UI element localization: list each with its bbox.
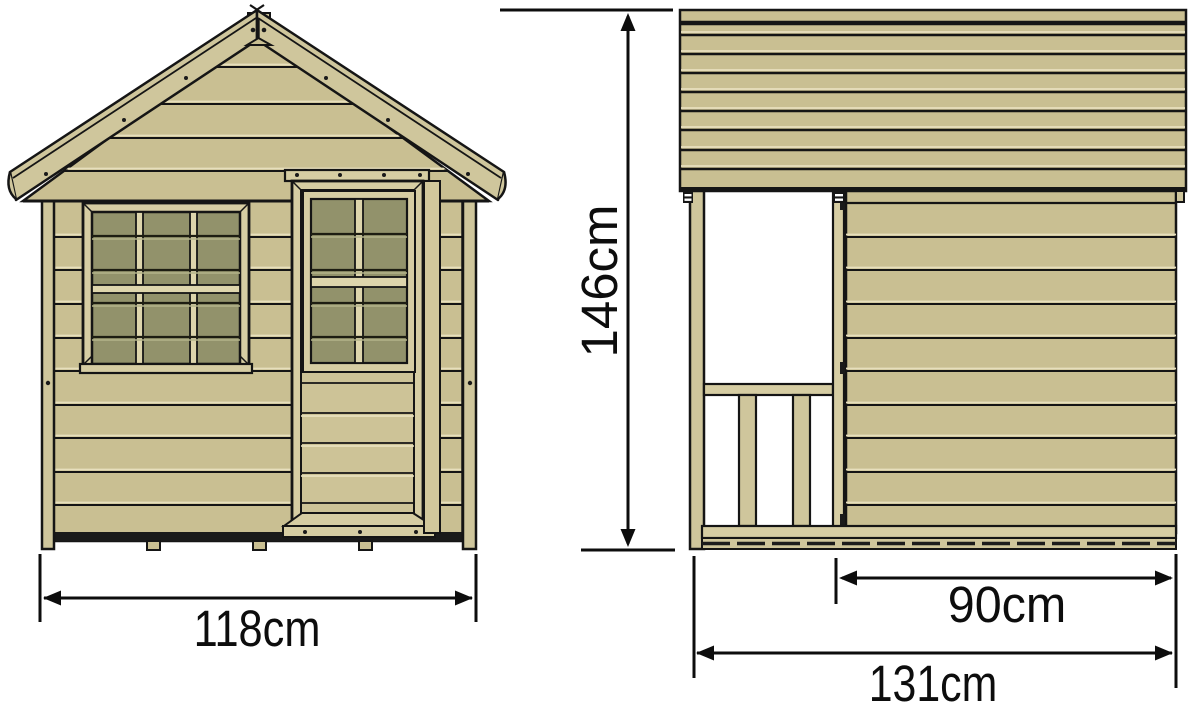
svg-text:118cm: 118cm: [194, 601, 321, 658]
svg-text:146cm: 146cm: [571, 204, 628, 357]
svg-text:131cm: 131cm: [869, 654, 998, 711]
svg-text:90cm: 90cm: [948, 576, 1066, 633]
